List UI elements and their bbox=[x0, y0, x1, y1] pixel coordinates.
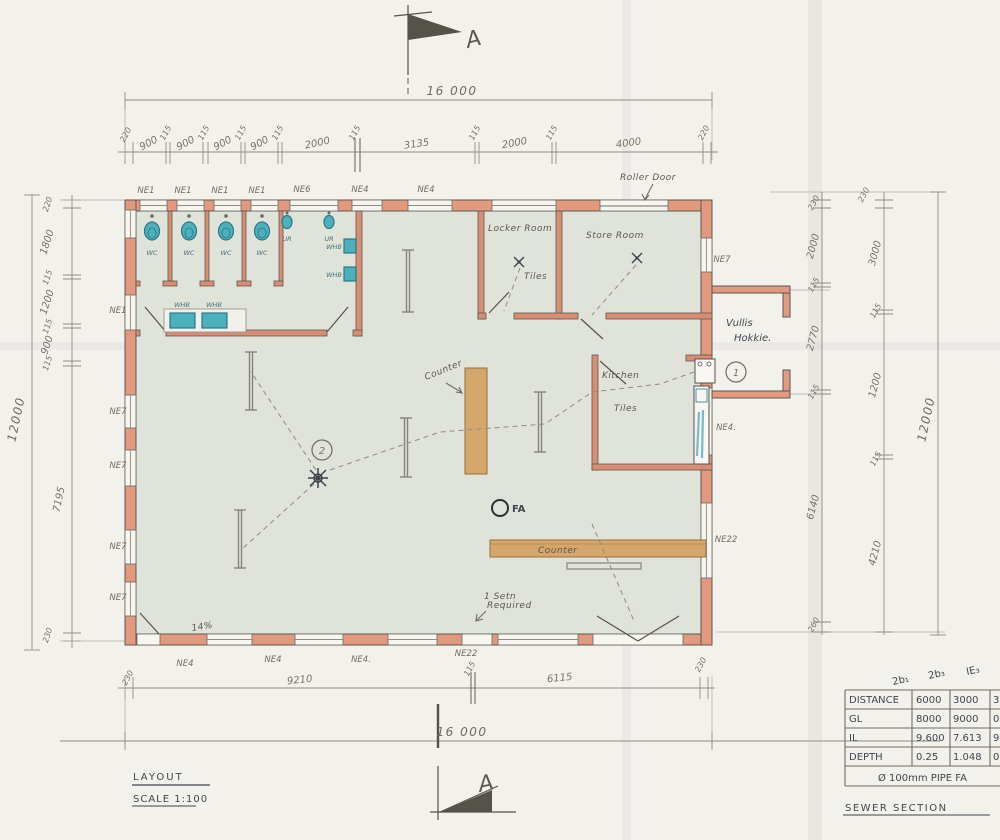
window-label: NE1 bbox=[211, 186, 228, 196]
wc-label: WC bbox=[221, 249, 232, 257]
window-label: NE7 bbox=[109, 542, 127, 552]
dim-label: 115 bbox=[41, 355, 54, 372]
window-label: NE4 bbox=[351, 185, 368, 195]
dim-label: 9210 bbox=[287, 674, 313, 688]
whb-label: WHB bbox=[206, 301, 222, 309]
floor-area bbox=[136, 211, 701, 634]
dim-label: 900 bbox=[39, 334, 55, 356]
left-dimension-lines: 12000 bbox=[4, 195, 124, 650]
basin-icon bbox=[202, 313, 227, 328]
dim-label: 115 bbox=[196, 124, 211, 142]
ie-marker-2-label: 2 bbox=[319, 446, 325, 457]
dim-label: 4000 bbox=[615, 136, 642, 150]
locker-room-label: Locker Room bbox=[488, 224, 552, 234]
left-dimension-labels: 220 1800 115 1200 115 900 115 7195 230 bbox=[38, 196, 67, 644]
bottom-dimension-labels: 230 9210 115 6115 230 bbox=[120, 656, 708, 687]
window-label: NE7 bbox=[713, 255, 731, 265]
table-cell: 7.613 bbox=[953, 733, 982, 744]
wc-label: WC bbox=[184, 249, 195, 257]
table-cell: 3 bbox=[993, 695, 999, 706]
dim-right-overall: 12000 bbox=[914, 395, 937, 443]
window-label: NE7 bbox=[109, 593, 127, 603]
dim-label: 115 bbox=[233, 124, 248, 142]
urinal-label: UR bbox=[324, 235, 333, 243]
section-marker-a-bottom: A bbox=[430, 766, 516, 820]
dim-label: 115 bbox=[41, 269, 54, 286]
table-cell: 0 bbox=[993, 714, 999, 725]
table-cell: 8000 bbox=[916, 714, 941, 725]
right-dimension-lines: 12000 bbox=[716, 192, 946, 635]
building-plan: 2 1 FA WC WC WC WC UR UR WHB WHB WHB WHB… bbox=[109, 173, 746, 669]
window-label: NE4. bbox=[716, 423, 736, 433]
table-column-header: 2b₃ bbox=[927, 668, 946, 682]
window-label: NE7 bbox=[109, 407, 127, 417]
fire-alarm-label: FA bbox=[512, 504, 526, 515]
locker-floor-label: Tiles bbox=[524, 272, 547, 282]
wc-label: WC bbox=[147, 249, 158, 257]
window-label: NE22 bbox=[715, 535, 738, 545]
urinal-icon bbox=[282, 216, 292, 229]
window-label: NE4 bbox=[176, 659, 193, 669]
sewer-section-title: SEWER SECTION bbox=[845, 803, 948, 814]
toilet-icon bbox=[145, 222, 160, 240]
table-cell: 0 bbox=[993, 752, 999, 763]
store-room-label: Store Room bbox=[586, 231, 644, 241]
layout-title: LAYOUT bbox=[133, 772, 184, 783]
section-arrow-icon bbox=[408, 14, 462, 40]
window-label: NE4 bbox=[264, 655, 281, 665]
basin-icon bbox=[344, 239, 356, 253]
table-column-header: 2b₁ bbox=[891, 674, 910, 688]
dim-label: 4210 bbox=[867, 540, 884, 567]
scanned-floor-plan-sheet: A 16 000 220 900 115 900 115 900 115 900… bbox=[0, 0, 1000, 840]
dim-label: 230 bbox=[856, 186, 871, 204]
table-cell: 9000 bbox=[953, 714, 978, 725]
table-row-label: GL bbox=[849, 714, 863, 725]
dim-label: 115 bbox=[544, 124, 559, 142]
section-label-bottom: A bbox=[474, 770, 496, 798]
dim-left-overall: 12000 bbox=[4, 395, 27, 443]
window-label: NE1 bbox=[174, 186, 191, 196]
window-label: NE1 bbox=[109, 306, 126, 316]
dim-label: 3000 bbox=[867, 240, 884, 267]
table-cell: 6000 bbox=[916, 695, 941, 706]
kitchen-floor-label: Tiles bbox=[614, 404, 637, 414]
table-row-label: DEPTH bbox=[849, 752, 883, 763]
floor-plan-drawing: A 16 000 220 900 115 900 115 900 115 900… bbox=[0, 0, 1000, 840]
table-row-label: IL bbox=[849, 733, 858, 744]
table-cell: 9 bbox=[993, 733, 999, 744]
note-line2: Required bbox=[487, 601, 532, 611]
dim-label: 900 bbox=[212, 134, 234, 153]
counter-horizontal bbox=[490, 540, 706, 557]
table-cell: 0.25 bbox=[916, 752, 938, 763]
whb-label: WHB bbox=[326, 271, 342, 279]
dim-label: 900 bbox=[249, 134, 271, 153]
wc-label: WC bbox=[257, 249, 268, 257]
windows-bottom bbox=[137, 634, 683, 645]
refuse-label-line1: Vullis bbox=[726, 318, 753, 329]
drawing-titles: LAYOUT SCALE 1:100 bbox=[132, 772, 210, 806]
dim-label: 115 bbox=[41, 318, 54, 335]
roller-door-label: Roller Door bbox=[620, 173, 677, 183]
window-label: NE22 bbox=[455, 649, 478, 659]
dim-label: 220 bbox=[41, 196, 54, 213]
dim-label: 1200 bbox=[867, 372, 884, 399]
dim-label: 115 bbox=[270, 124, 285, 142]
counter-label: Counter bbox=[538, 546, 578, 556]
window-label: NE7 bbox=[109, 461, 127, 471]
dim-label: 220 bbox=[696, 124, 711, 142]
double-door-opening bbox=[593, 634, 683, 645]
dim-label: 115 bbox=[868, 302, 883, 320]
toilet-icon bbox=[255, 222, 270, 240]
dim-label: 115 bbox=[467, 124, 482, 142]
toilet-icon bbox=[219, 222, 234, 240]
dim-label: 900 bbox=[138, 134, 160, 153]
counter-vertical bbox=[465, 368, 487, 474]
dim-label: 7195 bbox=[52, 486, 68, 513]
dim-label: 2000 bbox=[501, 136, 528, 151]
scale-note: SCALE 1:100 bbox=[133, 794, 208, 805]
geyser-icon bbox=[695, 359, 715, 383]
table-column-header: IE₃ bbox=[965, 664, 980, 678]
floor-drain-icon bbox=[308, 468, 328, 488]
dim-label: 220 bbox=[118, 126, 133, 144]
kitchen-label: Kitchen bbox=[602, 371, 639, 381]
table-cell: 1.048 bbox=[953, 752, 982, 763]
section-label-top: A bbox=[461, 26, 484, 55]
urinal-icon bbox=[324, 216, 334, 229]
urinal-label: UR bbox=[282, 235, 291, 243]
refuse-label-line2: Hokkie. bbox=[734, 333, 771, 344]
dim-label: 900 bbox=[175, 134, 197, 153]
dim-bottom-overall: 16 000 bbox=[437, 725, 488, 739]
window-label: NE6 bbox=[293, 185, 311, 195]
window-label: NE4 bbox=[417, 185, 434, 195]
dim-label: 230 bbox=[41, 627, 54, 644]
window-label: NE1 bbox=[248, 186, 265, 196]
sewer-table: 2b₁ 2b₃ IE₃ DISTANCE GL IL DEPTH 6000 30… bbox=[843, 664, 1000, 815]
dim-label: 3135 bbox=[403, 137, 430, 151]
dim-label: 1800 bbox=[38, 228, 56, 256]
table-cell: 9.600 bbox=[916, 733, 945, 744]
basin-icon bbox=[170, 313, 195, 328]
window-label: NE4. bbox=[351, 655, 371, 665]
door-opening bbox=[462, 634, 492, 645]
dim-top-overall: 16 000 bbox=[427, 84, 478, 98]
basin-icon bbox=[344, 267, 356, 281]
dim-label: 115 bbox=[158, 124, 173, 142]
dim-label: 6115 bbox=[547, 672, 573, 686]
table-cell: 3000 bbox=[953, 695, 978, 706]
window-label: NE1 bbox=[137, 186, 154, 196]
dim-label: 1200 bbox=[38, 288, 56, 316]
ie-marker-1-label: 1 bbox=[733, 368, 739, 379]
table-footer-note: Ø 100mm PIPE FA bbox=[878, 772, 967, 784]
dim-label: 230 bbox=[693, 656, 708, 674]
whb-label: WHB bbox=[174, 301, 190, 309]
whb-label: WHB bbox=[326, 243, 342, 251]
dim-label: 2000 bbox=[304, 136, 331, 152]
toilet-icon bbox=[182, 222, 197, 240]
table-row-label: DISTANCE bbox=[849, 695, 899, 706]
